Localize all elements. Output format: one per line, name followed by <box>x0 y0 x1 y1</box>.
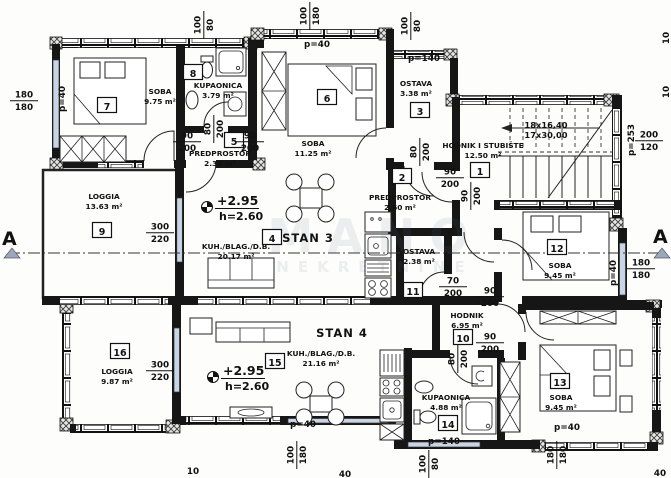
dimension-4: p=40 <box>304 40 330 50</box>
dimension-14: p=253 <box>627 124 637 156</box>
dimension-32: 10 <box>662 32 671 44</box>
room-12-area: 9.45 m² <box>544 271 576 280</box>
dim-17-under: 220 <box>151 235 169 245</box>
room-4-area: 20.17 m² <box>218 252 255 261</box>
dimension-15: 180180 <box>627 259 655 282</box>
room-4-name: KUH./BLAG./D.B. <box>202 242 271 251</box>
room-13-name: SOBA <box>550 393 573 402</box>
room-8-number: 8 <box>190 69 197 80</box>
room-15-label: 15KUH./BLAG./D.B.21.16 m² <box>266 349 356 369</box>
dim-5-under: 80 <box>413 20 423 32</box>
bed-room7 <box>74 58 146 124</box>
dim-27-over: 180 <box>547 446 557 464</box>
room-6-name: SOBA <box>302 139 325 148</box>
dimension-12: 90200 <box>461 182 484 210</box>
room-3-number: 3 <box>417 107 424 118</box>
dim-20-over: 90 <box>484 287 496 297</box>
wardrobe-room6 <box>262 52 286 130</box>
apartment-label-1: STAN 3 <box>282 231 334 245</box>
dim-26-text: p=40 <box>290 420 316 430</box>
dim-20-under: 200 <box>481 299 499 309</box>
dimension-17: 300220 <box>146 223 174 246</box>
room-7-area: 9.75 m² <box>144 97 176 106</box>
floor-plan-svg: MANONEKRETNINE7SOBA9.75 m²8KUPAONICA3.79… <box>0 0 671 478</box>
dim-10-under: 200 <box>441 180 459 190</box>
dim-6-text: p=140 <box>408 54 440 64</box>
sofa-stan3 <box>208 258 274 288</box>
ceiling-height: h=2.60 <box>219 210 264 223</box>
dim-18-under: 220 <box>151 373 169 383</box>
room-5-area: 2.36 m² <box>204 159 236 168</box>
wardrobe-room7 <box>60 136 126 162</box>
room-1-number: 1 <box>477 167 484 178</box>
dim-21-over: 90 <box>484 333 496 343</box>
elevation-marker-2: +2.95h=2.60 <box>208 363 270 393</box>
room-16-label: 16LOGGIA9.87 m² <box>101 344 133 387</box>
dim-4-text: p=40 <box>304 40 330 50</box>
room-12-name: SOBA <box>549 261 572 270</box>
stair-run-line2: 17x30,00 <box>524 130 567 140</box>
room-9-name: LOGGIA <box>88 192 120 201</box>
dim-0-over: 100 <box>194 16 204 34</box>
room-10-name: HODNIK <box>450 311 484 320</box>
dim-13-under: 120 <box>640 143 658 153</box>
dim-12-over: 90 <box>461 190 471 202</box>
room-16-number: 16 <box>113 348 127 359</box>
stair-run-label: 18x16,4017x30,00 <box>524 120 567 140</box>
dim-3-under: 180 <box>312 7 322 25</box>
dim-22-over: 80 <box>448 353 458 365</box>
dimension-1: 180180 <box>10 91 38 114</box>
room-6-area: 11.25 m² <box>295 149 332 158</box>
dimension-28: p=40 <box>554 423 580 433</box>
room-9-label: 9LOGGIA13.63 m² <box>86 192 123 238</box>
room-14-number: 14 <box>441 420 455 431</box>
wardrobe-room13-left <box>500 362 520 432</box>
dim-13-over: 200 <box>640 131 658 141</box>
ceiling-height: h=2.60 <box>225 380 270 393</box>
dim-14-text: p=253 <box>627 124 637 156</box>
dim-9-under: 200 <box>216 120 226 138</box>
dimension-33: 10 <box>662 86 671 98</box>
dim-28-text: p=40 <box>554 423 580 433</box>
room-2-name: PREDPROSTOR <box>369 193 431 202</box>
dim-10-over: 90 <box>444 168 456 178</box>
dim-1-over: 180 <box>15 91 33 101</box>
room-8-area: 3.79 m² <box>202 91 234 100</box>
dim-15-under: 180 <box>632 271 650 281</box>
elevation-value: +2.95 <box>223 363 264 378</box>
dim-0-under: 80 <box>206 19 216 31</box>
room-10-number: 10 <box>456 334 470 345</box>
dim-11-over: 80 <box>410 146 420 158</box>
dimension-11: 80200 <box>410 138 433 166</box>
dim-8-over: 90 <box>244 132 256 142</box>
room-1-name: HODNIK I STUBIŠTE <box>442 141 523 150</box>
room-9-number: 9 <box>99 227 106 238</box>
dim-15-over: 180 <box>632 259 650 269</box>
dim-9-over: 80 <box>204 123 214 135</box>
room-7-name: SOBA <box>149 87 172 96</box>
dim-5-over: 100 <box>401 17 411 35</box>
stair-run-line1: 18x16,40 <box>524 120 567 130</box>
wardrobe-room13-top <box>540 311 616 324</box>
dim-3-over: 100 <box>300 7 310 25</box>
dim-11-under: 200 <box>422 143 432 161</box>
dimension-5: 10080 <box>401 12 424 40</box>
room-10-label: 10HODNIK6.95 m² <box>450 311 484 345</box>
dim-18-over: 300 <box>151 361 169 371</box>
tv-cabinet-stan4 <box>230 407 272 418</box>
dim-21-under: 200 <box>481 345 499 355</box>
room-10-area: 6.95 m² <box>451 321 483 330</box>
dim-32-text: 10 <box>662 32 671 44</box>
room-13-area: 9.45 m² <box>545 403 577 412</box>
room-3-area: 3.38 m² <box>400 89 432 98</box>
dimension-24: 10080 <box>419 450 442 478</box>
dim-25-under: 180 <box>299 446 309 464</box>
dimension-25: 100180 <box>287 441 310 469</box>
kitchen-stan4 <box>380 350 404 440</box>
dim-19-under: 200 <box>444 289 462 299</box>
room-16-area: 9.87 m² <box>101 377 133 386</box>
dimension-9: 80200 <box>204 115 227 143</box>
room-6-number: 6 <box>324 94 331 105</box>
room-2-area: 2.60 m² <box>384 203 416 212</box>
dim-8-under: 200 <box>241 144 259 154</box>
dim-12-under: 200 <box>473 187 483 205</box>
room-1-area: 12.50 m² <box>465 151 502 160</box>
dim-23-text: p=140 <box>428 437 460 447</box>
dim-30-text: 40 <box>339 470 351 478</box>
elevation-value: +2.95 <box>217 193 258 208</box>
room-15-area: 21.16 m² <box>303 359 340 368</box>
room-15-name: KUH./BLAG./D.B. <box>287 349 356 358</box>
room-8-name: KUPAONICA <box>194 81 243 90</box>
dimension-18: 300220 <box>146 361 174 384</box>
dim-27-under: 180 <box>559 446 569 464</box>
dimension-23: p=140 <box>428 437 460 447</box>
apartment-label-2: STAN 4 <box>316 326 368 340</box>
dim-2-text: p=40 <box>58 86 68 112</box>
dimension-29: 10 <box>187 467 199 477</box>
dimension-16: p=40 <box>609 260 619 286</box>
dimension-30: 40 <box>339 470 351 478</box>
room-13-number: 13 <box>553 378 566 389</box>
section-letter: A <box>653 226 668 248</box>
stair-arrow-head <box>501 124 512 132</box>
room-11-name: OSTAVA <box>403 247 436 256</box>
dim-25-over: 100 <box>287 446 297 464</box>
sofa-stan4 <box>190 318 290 342</box>
door-room7 <box>144 131 174 161</box>
dim-7-under: 200 <box>178 144 196 154</box>
room-3-label: 3OSTAVA3.38 m² <box>400 79 433 118</box>
dimension-3: 100180 <box>300 2 323 30</box>
dimension-19: 70200 <box>439 277 467 300</box>
dimension-0: 10080 <box>194 11 217 39</box>
room-15-number: 15 <box>268 358 281 369</box>
floor-plan-page: MANONEKRETNINE7SOBA9.75 m²8KUPAONICA3.79… <box>0 0 671 478</box>
room-7-number: 7 <box>104 102 111 113</box>
room-11-number: 11 <box>406 287 419 298</box>
room-14-area: 4.88 m² <box>430 403 462 412</box>
section-letter: A <box>2 228 17 250</box>
dim-29-text: 10 <box>187 467 199 477</box>
room-16-name: LOGGIA <box>101 367 133 376</box>
room-9-area: 13.63 m² <box>86 202 123 211</box>
dimension-2: p=40 <box>58 86 68 112</box>
dim-7-over: 90 <box>181 132 193 142</box>
dimension-26: p=40 <box>290 420 316 430</box>
watermark-line2: NEKRETNINE <box>276 258 473 276</box>
dim-17-over: 300 <box>151 223 169 233</box>
dim-1-under: 180 <box>15 103 33 113</box>
elevation-marker-1: +2.95h=2.60 <box>202 193 264 223</box>
dim-33-text: 10 <box>662 86 671 98</box>
room-11-area: 2.38 m² <box>403 257 435 266</box>
dim-31-text: 40 <box>654 469 666 478</box>
dim-24-over: 100 <box>419 455 429 473</box>
dim-24-under: 80 <box>431 458 441 470</box>
dimension-13: 200120 <box>635 131 663 154</box>
dim-19-over: 70 <box>447 277 459 287</box>
room-14-name: KUPAONICA <box>422 393 471 402</box>
dim-16-text: p=40 <box>609 260 619 286</box>
room-12-number: 12 <box>550 244 563 255</box>
dimension-6: p=140 <box>408 54 440 64</box>
room-2-number: 2 <box>399 173 406 184</box>
room-3-name: OSTAVA <box>400 79 433 88</box>
dimension-31: 40 <box>654 469 666 478</box>
room-5-number: 5 <box>231 137 238 148</box>
dim-22-under: 200 <box>460 350 470 368</box>
dimension-22: 80200 <box>448 345 471 373</box>
